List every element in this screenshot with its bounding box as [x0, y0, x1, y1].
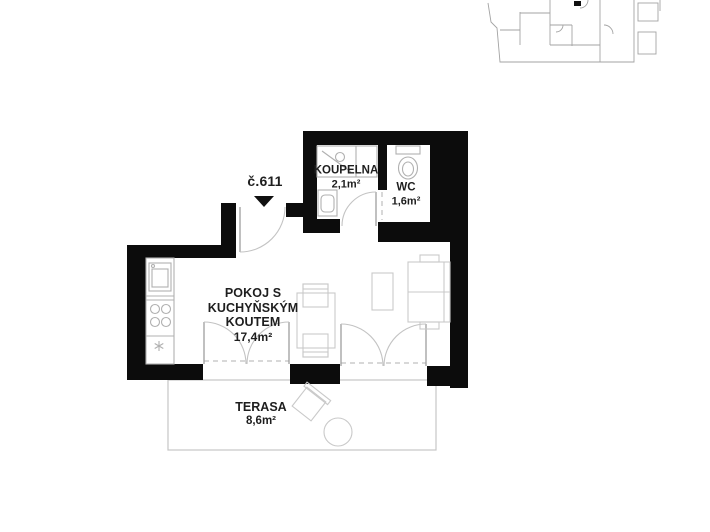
toilet-fixture — [396, 146, 420, 179]
wall-bathroom-bottom — [303, 219, 340, 233]
sofa-bed — [408, 255, 450, 329]
freezer-symbol-icon — [155, 341, 164, 351]
washbasin-fixture — [318, 190, 337, 216]
wc-label: WC 1,6m² — [392, 182, 421, 209]
french-door-right — [341, 324, 426, 366]
floorplan-canvas: č.611 KOUPELNA 2,1m² WC 1,6m² POKOJ S KU… — [0, 0, 710, 532]
wall-left — [127, 245, 146, 378]
main-room-name-line2: KUCHYŇSKÝM — [208, 301, 299, 316]
main-room-label: POKOJ S KUCHYŇSKÝM KOUTEM 17,4m² — [208, 286, 299, 344]
wc-area: 1,6m² — [392, 195, 421, 209]
wall-bottom-pier — [290, 364, 340, 384]
terrace-name: TERASA — [235, 400, 286, 414]
entrance-door — [240, 207, 285, 252]
overview-location-marker — [574, 1, 581, 6]
coffee-table — [372, 273, 393, 310]
terrace-outline — [168, 380, 436, 450]
bathroom-door — [342, 192, 376, 226]
main-room-name-line1: POKOJ S — [208, 286, 299, 301]
bathroom-label: KOUPELNA 2,1m² — [314, 165, 379, 192]
main-room-name-line3: KOUTEM — [208, 315, 299, 330]
main-room-area: 17,4m² — [208, 330, 299, 345]
overview-balcony — [638, 3, 658, 21]
chair — [303, 284, 328, 307]
bathroom-name: KOUPELNA — [314, 165, 379, 179]
chair — [303, 334, 328, 357]
entrance-marker-icon — [254, 196, 274, 207]
floorplan-drawing — [0, 0, 710, 532]
walls — [127, 131, 468, 388]
cooktop-fixture — [151, 305, 171, 327]
terrace-table — [324, 418, 352, 446]
kitchen-sink-fixture — [149, 263, 171, 291]
overview-balcony — [638, 32, 656, 54]
wall-bottom-right-corner — [427, 366, 468, 386]
wall-bottom-left — [127, 364, 203, 380]
wall-bathroom-wc-divider — [378, 145, 387, 190]
overview-floor-plan — [488, 0, 660, 62]
wall-entrance-right — [286, 203, 303, 217]
terrace-label: TERASA 8,6m² — [235, 400, 286, 428]
terrace-area: 8,6m² — [235, 414, 286, 428]
wall-wc-bottom — [378, 222, 468, 242]
terrace-chair — [290, 382, 331, 423]
unit-number-label: č.611 — [247, 173, 282, 189]
wc-name: WC — [392, 182, 421, 196]
bathroom-area: 2,1m² — [314, 178, 379, 192]
